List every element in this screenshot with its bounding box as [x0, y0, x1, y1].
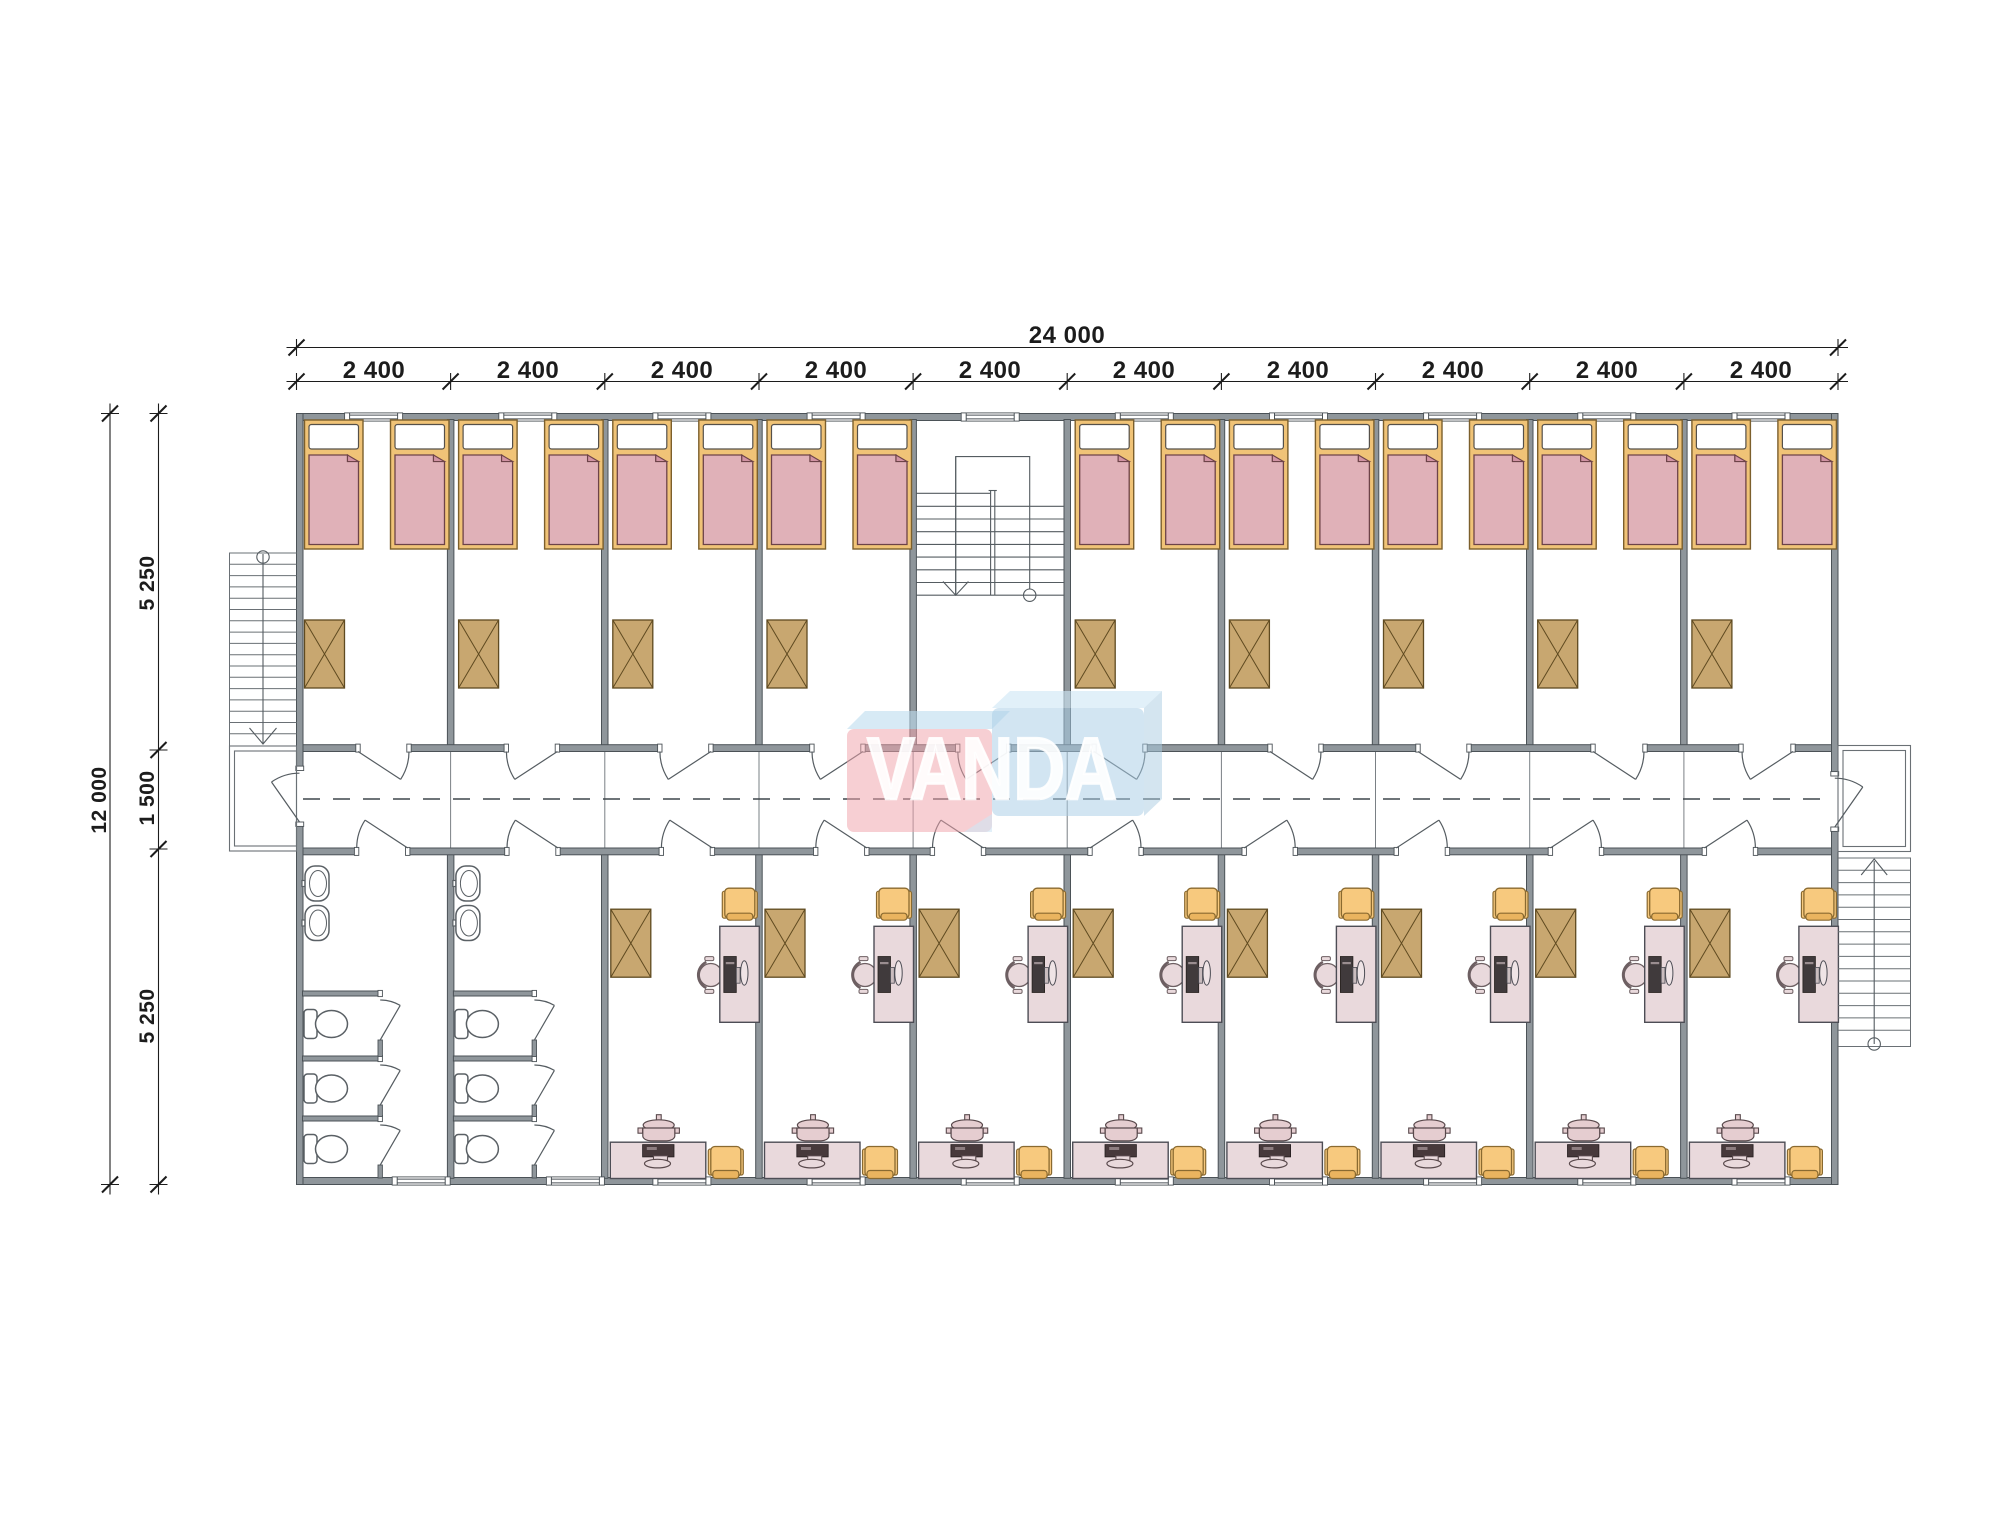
svg-text:5 250: 5 250 [136, 988, 159, 1043]
svg-text:24 000: 24 000 [1029, 322, 1105, 349]
svg-text:VANDA: VANDA [867, 719, 1117, 818]
svg-text:2 400: 2 400 [497, 357, 560, 384]
svg-text:2 400: 2 400 [959, 357, 1022, 384]
svg-text:2 400: 2 400 [805, 357, 868, 384]
svg-text:5 250: 5 250 [136, 555, 159, 610]
svg-text:2 400: 2 400 [1422, 357, 1485, 384]
svg-text:2 400: 2 400 [651, 357, 714, 384]
svg-text:2 400: 2 400 [1576, 357, 1639, 384]
svg-text:2 400: 2 400 [1113, 357, 1176, 384]
svg-text:2 400: 2 400 [1267, 357, 1330, 384]
svg-text:2 400: 2 400 [1730, 357, 1793, 384]
svg-text:1 500: 1 500 [136, 770, 159, 825]
svg-text:12 000: 12 000 [88, 766, 111, 833]
svg-text:2 400: 2 400 [343, 357, 406, 384]
